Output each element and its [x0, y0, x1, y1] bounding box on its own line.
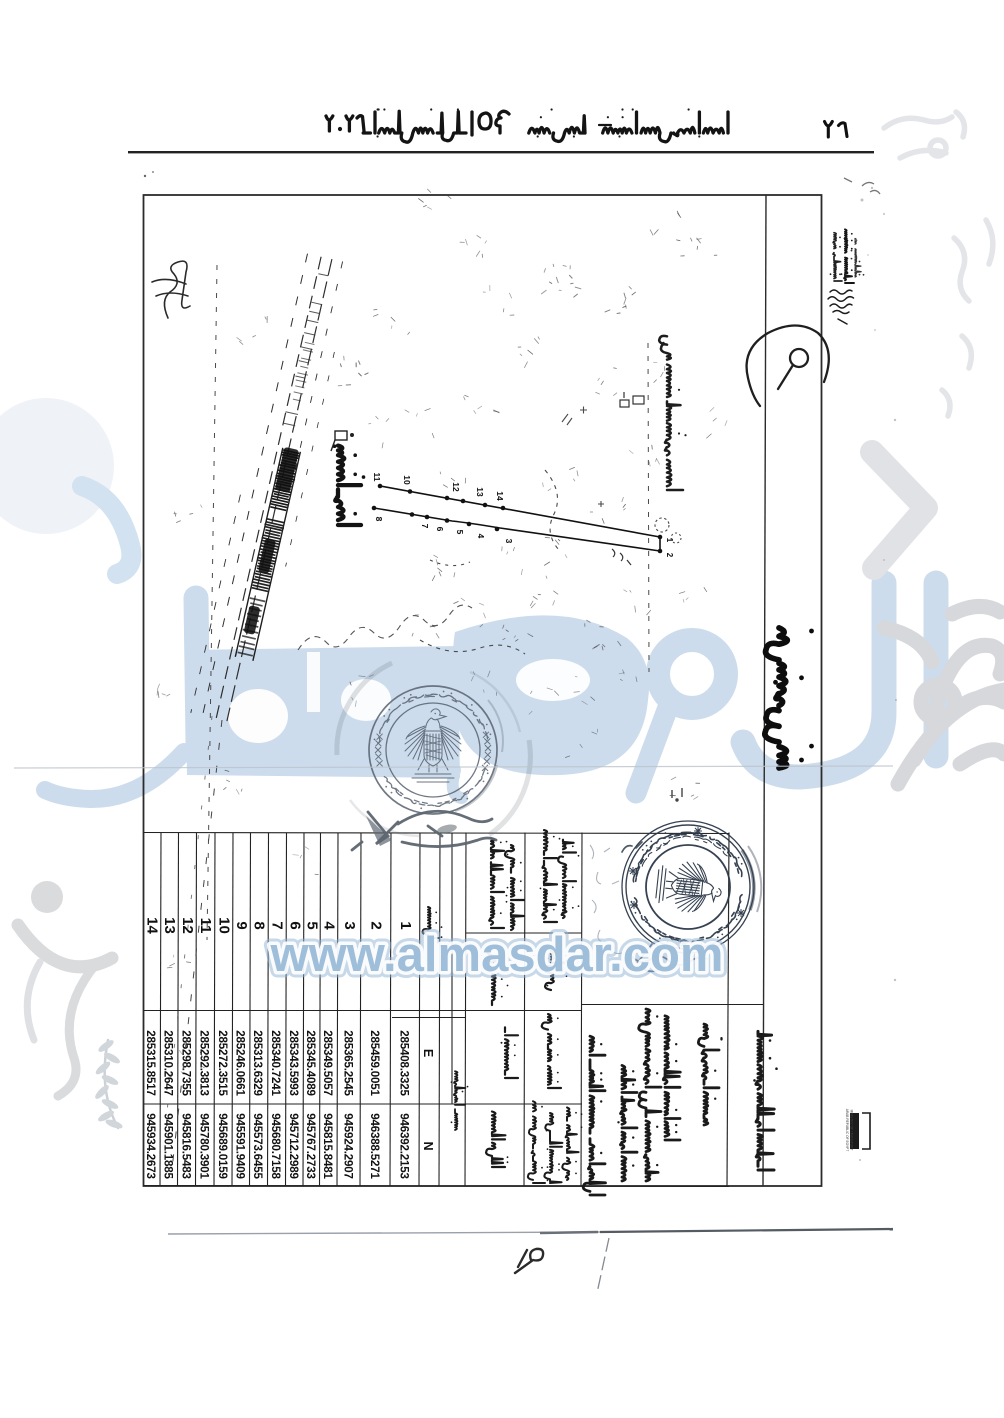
- svg-text:ARAB REPUBLIC OF EGYPT: ARAB REPUBLIC OF EGYPT: [845, 1109, 849, 1152]
- svg-text:8: 8: [374, 517, 384, 522]
- svg-text:14: 14: [144, 917, 161, 934]
- svg-text:945712.2989: 945712.2989: [287, 1113, 300, 1179]
- svg-text:945934.2673: 945934.2673: [144, 1113, 157, 1179]
- svg-text:945901.1885: 945901.1885: [162, 1113, 175, 1179]
- svg-text:945816.5483: 945816.5483: [180, 1113, 193, 1179]
- svg-text:N: N: [421, 1141, 435, 1150]
- svg-text:8: 8: [251, 921, 268, 929]
- svg-text:11: 11: [372, 473, 382, 482]
- svg-text:945780.3901: 945780.3901: [198, 1113, 211, 1179]
- svg-text:4: 4: [476, 534, 486, 539]
- svg-text:285343.5993: 285343.5993: [287, 1030, 300, 1096]
- svg-text:5: 5: [455, 530, 465, 535]
- svg-text:945767.2733: 945767.2733: [304, 1113, 317, 1179]
- svg-text:285310.2647: 285310.2647: [162, 1030, 175, 1096]
- svg-text:285313.6329: 285313.6329: [251, 1030, 264, 1096]
- svg-text:945573.6455: 945573.6455: [251, 1113, 264, 1179]
- svg-text:E: E: [421, 1049, 435, 1057]
- svg-text:285459.0051: 285459.0051: [368, 1030, 381, 1096]
- svg-text:1: 1: [665, 538, 674, 543]
- svg-text:285349.5057: 285349.5057: [321, 1030, 334, 1096]
- svg-text:285340.7241: 285340.7241: [269, 1030, 282, 1096]
- svg-text:285272.3515: 285272.3515: [216, 1030, 229, 1096]
- svg-text:285315.8517: 285315.8517: [144, 1030, 157, 1096]
- svg-text:285292.3813: 285292.3813: [198, 1030, 211, 1096]
- svg-text:945591.9409: 945591.9409: [234, 1113, 247, 1179]
- svg-text:12: 12: [179, 917, 196, 934]
- svg-text:285345.4089: 285345.4089: [304, 1030, 317, 1096]
- svg-text:14: 14: [495, 491, 505, 501]
- svg-text:945680.7158: 945680.7158: [269, 1113, 282, 1179]
- svg-text:9: 9: [233, 921, 250, 929]
- svg-text:13: 13: [161, 917, 178, 934]
- svg-text:285365.2545: 285365.2545: [342, 1030, 355, 1096]
- svg-text:945815.8481: 945815.8481: [321, 1113, 334, 1179]
- svg-text:7: 7: [420, 524, 430, 529]
- svg-text:11: 11: [197, 918, 214, 934]
- svg-text:10: 10: [216, 917, 233, 934]
- svg-text:www.almasdar.com: www.almasdar.com: [270, 928, 724, 982]
- svg-text:MINISTRY OF TRANSPORT: MINISTRY OF TRANSPORT: [850, 1110, 854, 1151]
- svg-text:6: 6: [435, 527, 445, 532]
- svg-text:10: 10: [402, 475, 412, 485]
- svg-text:13: 13: [475, 487, 485, 497]
- svg-text:12: 12: [451, 482, 461, 492]
- svg-text:945689.0159: 945689.0159: [216, 1113, 229, 1179]
- svg-text:2: 2: [665, 553, 674, 558]
- svg-text:285246.0661: 285246.0661: [234, 1030, 247, 1096]
- svg-text:946392.2153: 946392.2153: [398, 1113, 411, 1179]
- svg-text:946388.5271: 946388.5271: [368, 1113, 381, 1179]
- svg-text:3: 3: [504, 539, 514, 544]
- svg-text:285408.3325: 285408.3325: [398, 1030, 411, 1096]
- svg-text:945924.2907: 945924.2907: [342, 1113, 355, 1179]
